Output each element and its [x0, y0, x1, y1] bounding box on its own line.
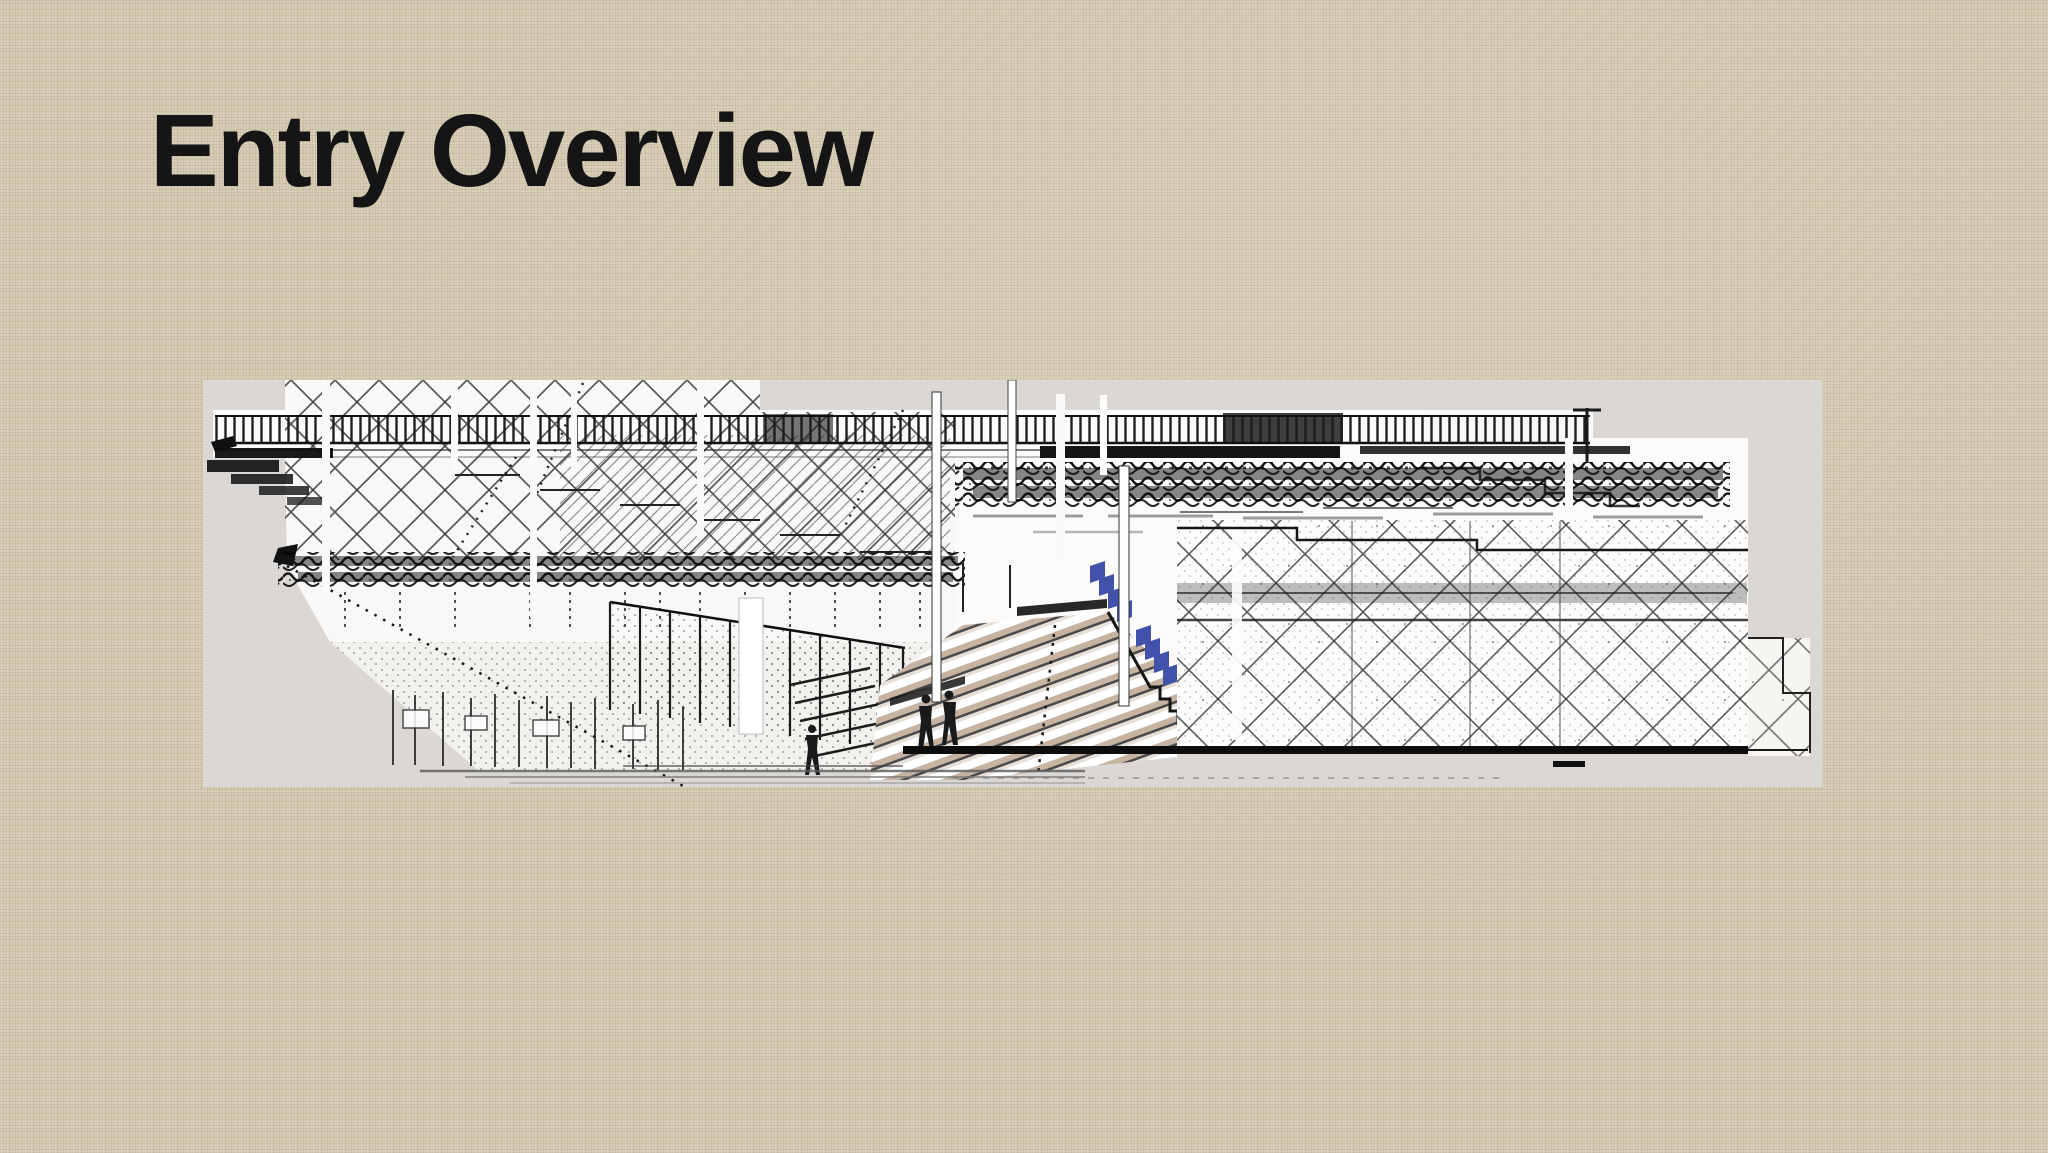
rendering-canvas — [203, 380, 1822, 787]
slide-title: Entry Overview — [150, 94, 872, 207]
entry-architectural-rendering — [203, 380, 1822, 787]
slide: { "slide": { "title": "Entry Overview", … — [0, 0, 2048, 1153]
crosshatch-wall-right — [1177, 508, 1810, 756]
